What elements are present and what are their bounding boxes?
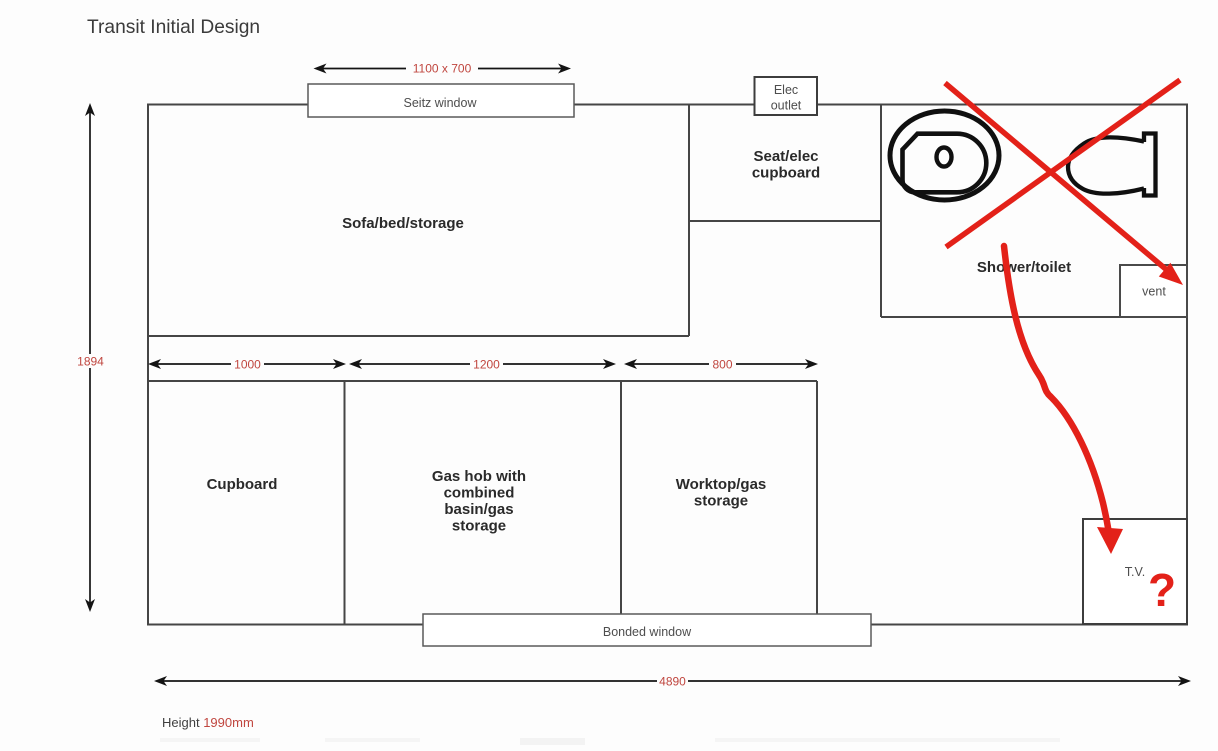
svg-text:Elec: Elec (774, 83, 798, 97)
svg-text:Shower/toilet: Shower/toilet (977, 259, 1071, 276)
svg-text:Bonded window: Bonded window (603, 625, 692, 639)
svg-text:combined: combined (444, 485, 515, 502)
svg-text:Seat/elec: Seat/elec (753, 148, 818, 165)
svg-text:800: 800 (712, 358, 732, 372)
svg-text:storage: storage (694, 493, 748, 510)
svg-text:Height 1990mm: Height 1990mm (162, 715, 254, 730)
svg-text:1000: 1000 (234, 358, 261, 372)
svg-text:Sofa/bed/storage: Sofa/bed/storage (342, 215, 464, 232)
svg-text:Seitz window: Seitz window (404, 96, 478, 110)
svg-text:vent: vent (1142, 285, 1166, 299)
svg-text:Gas hob with: Gas hob with (432, 468, 526, 485)
svg-text:Cupboard: Cupboard (207, 476, 278, 493)
svg-text:cupboard: cupboard (752, 165, 820, 182)
svg-text:storage: storage (452, 518, 506, 535)
svg-text:1200: 1200 (473, 358, 500, 372)
svg-text:1100 x 700: 1100 x 700 (413, 62, 472, 76)
svg-text:1894: 1894 (77, 355, 104, 369)
svg-text:Worktop/gas: Worktop/gas (676, 476, 767, 493)
svg-text:Transit Initial Design: Transit Initial Design (87, 17, 260, 38)
svg-text:outlet: outlet (771, 99, 802, 113)
svg-text:T.V.: T.V. (1125, 565, 1145, 579)
svg-text:4890: 4890 (659, 675, 686, 689)
svg-text:basin/gas: basin/gas (444, 501, 513, 518)
svg-text:?: ? (1148, 564, 1176, 616)
